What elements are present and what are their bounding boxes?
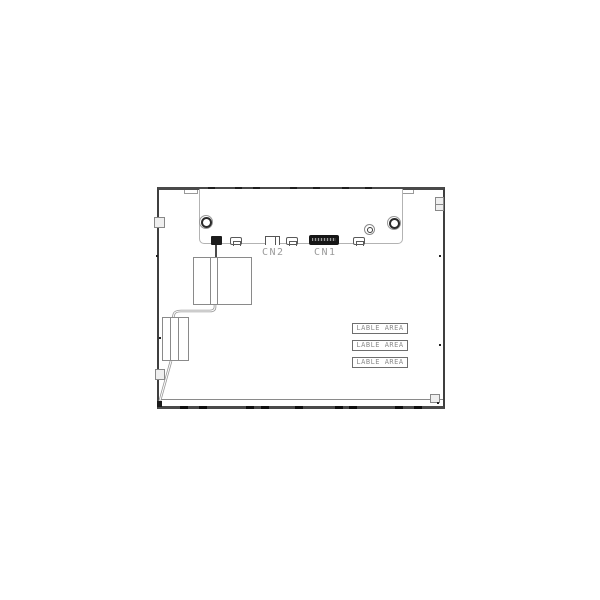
drawing-canvas: CN2 CN1 LABLE AREA LABLE AREA LABLE AREA xyxy=(0,0,600,600)
alignment-dot xyxy=(156,255,158,257)
side-tab-right xyxy=(435,197,444,211)
bottom-edge-pad xyxy=(395,406,403,409)
bottom-edge-pad xyxy=(335,406,343,409)
mount-tab-slot xyxy=(289,241,297,246)
label-area-text: LABLE AREA xyxy=(356,341,403,350)
connector-j1 xyxy=(211,236,222,245)
bottom-edge-pad xyxy=(261,406,269,409)
bottom-inner-line xyxy=(159,399,443,400)
connector-cn2 xyxy=(265,236,280,245)
bottom-edge-pad xyxy=(295,406,303,409)
corner-cable-exit xyxy=(157,401,162,407)
pcb-divider xyxy=(217,258,218,304)
bottom-edge-pad xyxy=(180,406,188,409)
mount-tab-slot xyxy=(356,241,364,246)
bezel-top-section xyxy=(199,189,403,244)
connector-cn1 xyxy=(309,235,339,245)
pcb-box-large xyxy=(193,257,252,305)
side-tab-left-upper xyxy=(154,217,165,228)
cn1-pin-slot xyxy=(312,238,336,241)
screw-ring xyxy=(389,218,400,229)
alignment-dot xyxy=(439,344,441,346)
bottom-edge-pad xyxy=(246,406,254,409)
alignment-dot xyxy=(159,337,161,339)
alignment-dot xyxy=(437,402,439,404)
mount-tab xyxy=(230,237,242,245)
pcb-box-small xyxy=(162,317,189,361)
label-area-text: LABLE AREA xyxy=(356,324,403,333)
screw-icon xyxy=(199,215,213,229)
pcb-divider xyxy=(170,318,171,360)
label-area-text: LABLE AREA xyxy=(356,358,403,367)
pcb-divider xyxy=(210,258,211,304)
mount-tab xyxy=(286,237,298,245)
label-area-box: LABLE AREA xyxy=(352,340,408,351)
bottom-edge-pad xyxy=(199,406,207,409)
pcb-divider xyxy=(178,318,179,360)
label-area-box: LABLE AREA xyxy=(352,357,408,368)
mount-tab-slot xyxy=(233,241,241,246)
screw-ring xyxy=(201,217,212,228)
screw-icon xyxy=(387,216,401,230)
mount-tab xyxy=(353,237,365,245)
side-tab-left-lower xyxy=(155,369,165,380)
small-screw-icon xyxy=(364,224,375,235)
side-tab-line xyxy=(436,204,443,205)
bottom-edge-pad xyxy=(349,406,357,409)
top-edge-notch xyxy=(184,190,198,194)
bottom-edge-pad xyxy=(414,406,422,409)
j1-wire xyxy=(215,245,217,257)
alignment-dot xyxy=(439,255,441,257)
cn2-divider xyxy=(275,237,276,245)
label-area-box: LABLE AREA xyxy=(352,323,408,334)
screw-center-dot xyxy=(367,227,373,233)
cn2-label: CN2 xyxy=(262,248,285,258)
cn1-label: CN1 xyxy=(314,248,337,258)
